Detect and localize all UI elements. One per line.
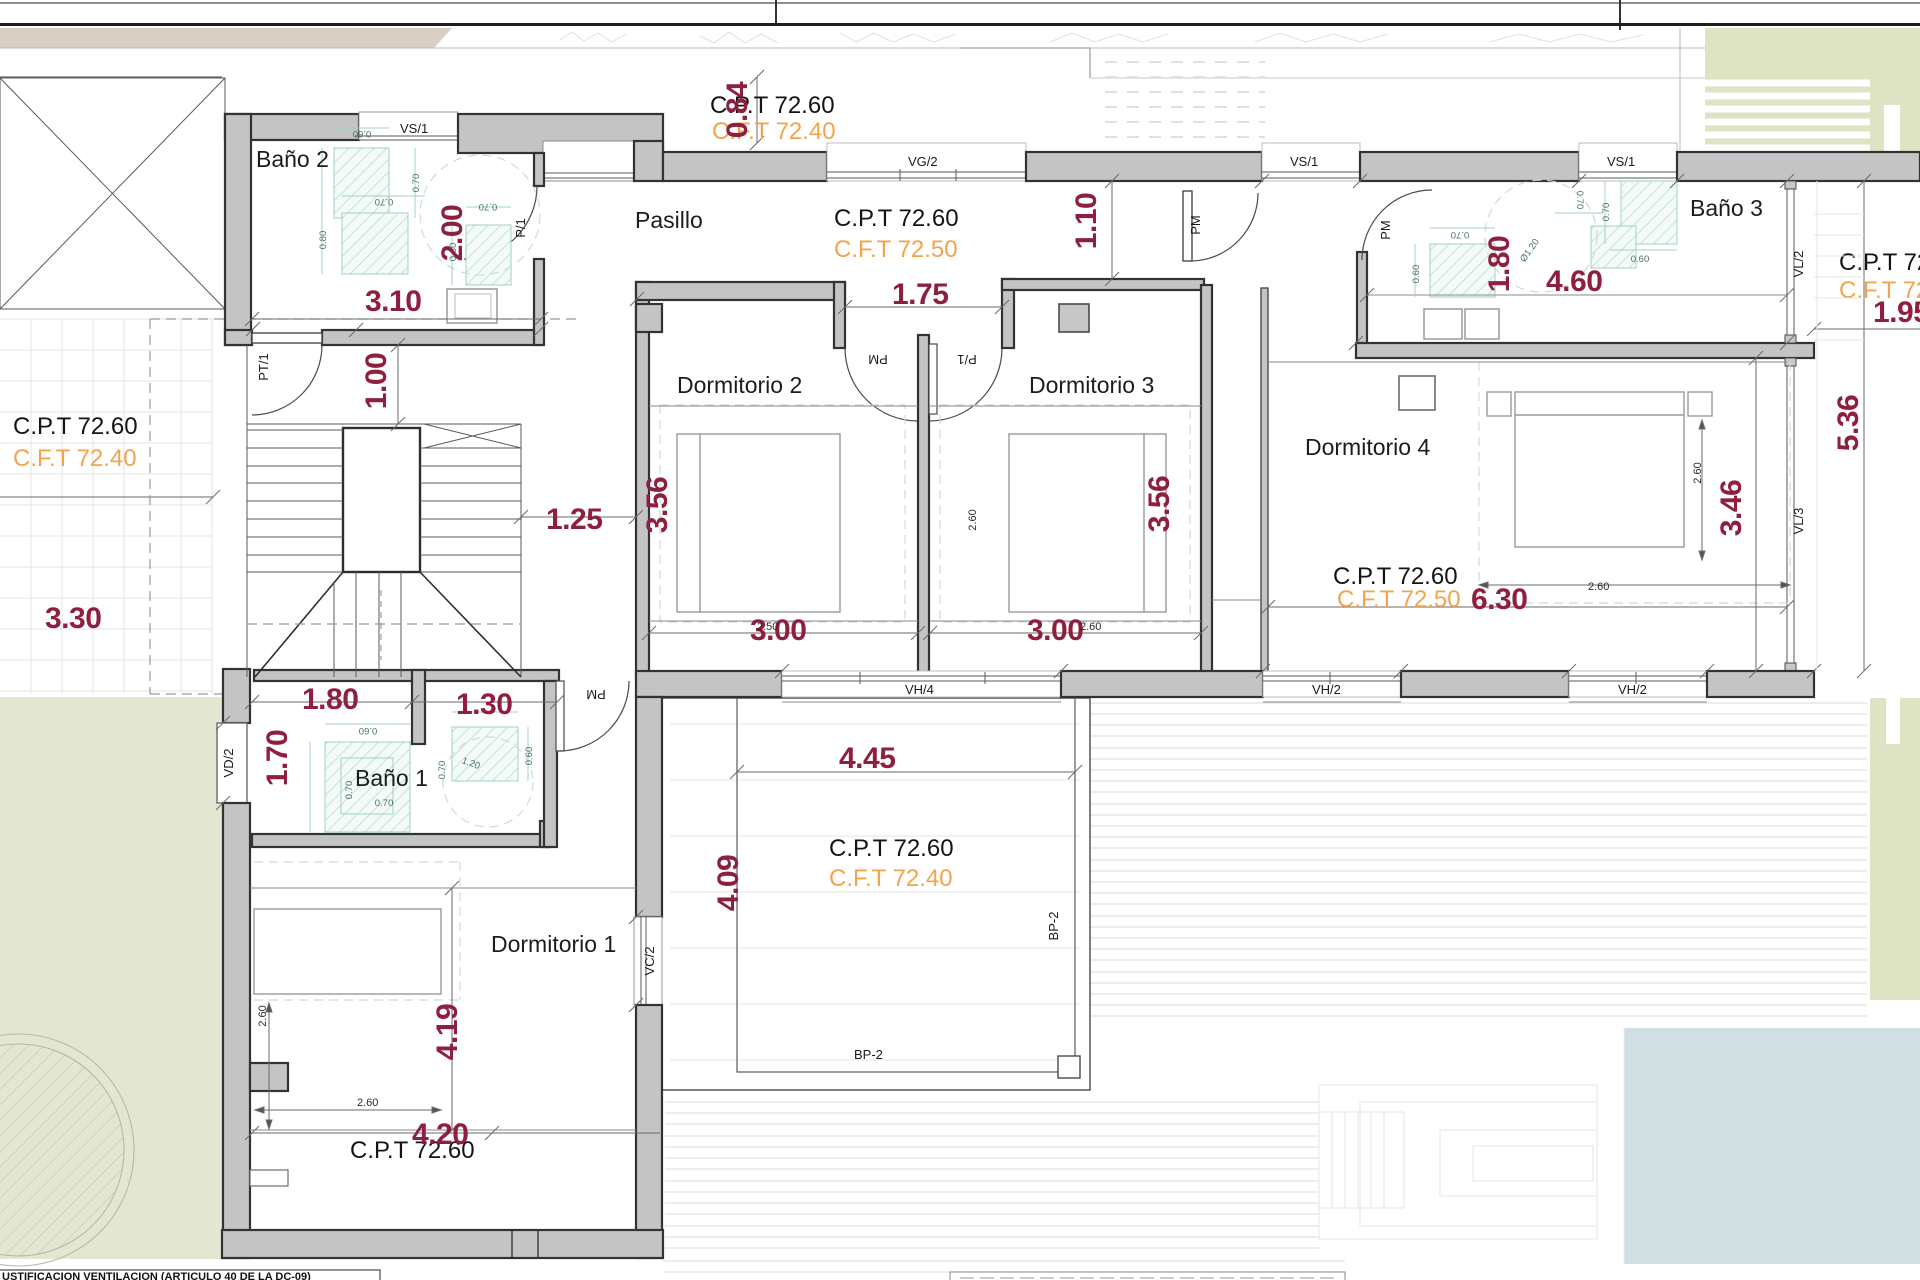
svg-text:3.10: 3.10 bbox=[365, 285, 421, 318]
svg-text:VH/2: VH/2 bbox=[1312, 682, 1341, 697]
svg-text:2.00: 2.00 bbox=[436, 205, 469, 261]
svg-text:C.P.T 72.60: C.P.T 72.60 bbox=[1839, 249, 1920, 276]
svg-text:2.60: 2.60 bbox=[257, 1005, 269, 1026]
svg-text:1.75: 1.75 bbox=[892, 278, 948, 311]
svg-text:0.60: 0.60 bbox=[353, 128, 372, 139]
svg-text:1.70: 1.70 bbox=[261, 730, 294, 786]
svg-text:Dormitorio 1: Dormitorio 1 bbox=[491, 931, 616, 957]
svg-text:0.70: 0.70 bbox=[411, 174, 422, 193]
svg-text:4.09: 4.09 bbox=[712, 855, 745, 911]
svg-text:0.60: 0.60 bbox=[524, 747, 535, 766]
svg-text:1.00: 1.00 bbox=[360, 353, 393, 409]
svg-text:0.70: 0.70 bbox=[375, 196, 394, 207]
svg-text:0.70: 0.70 bbox=[479, 201, 498, 212]
svg-text:1.25: 1.25 bbox=[546, 503, 602, 536]
svg-text:2.60: 2.60 bbox=[1692, 462, 1704, 483]
svg-text:0.80: 0.80 bbox=[318, 231, 329, 250]
svg-text:4.19: 4.19 bbox=[431, 1004, 464, 1060]
svg-text:2.60: 2.60 bbox=[1588, 581, 1609, 593]
svg-text:0.70: 0.70 bbox=[1574, 191, 1585, 210]
svg-text:PM: PM bbox=[1378, 220, 1393, 240]
svg-text:Pasillo: Pasillo bbox=[635, 207, 703, 233]
svg-text:C.P.T 72.60: C.P.T 72.60 bbox=[13, 413, 138, 440]
svg-text:PM: PM bbox=[586, 687, 606, 702]
svg-text:4.20: 4.20 bbox=[412, 1118, 468, 1151]
svg-text:2.60: 2.60 bbox=[1080, 621, 1101, 633]
svg-text:C.F.T 72.50: C.F.T 72.50 bbox=[834, 236, 958, 263]
svg-text:3.56: 3.56 bbox=[641, 477, 674, 533]
svg-text:VH/2: VH/2 bbox=[1618, 682, 1647, 697]
svg-text:3.46: 3.46 bbox=[1715, 480, 1748, 536]
svg-text:4.45: 4.45 bbox=[839, 742, 895, 775]
svg-text:5.36: 5.36 bbox=[1832, 395, 1865, 451]
svg-text:0.84: 0.84 bbox=[721, 81, 754, 138]
svg-text:3.56: 3.56 bbox=[1143, 476, 1176, 532]
svg-text:VS/1: VS/1 bbox=[400, 121, 428, 136]
svg-text:VL/3: VL/3 bbox=[1791, 508, 1806, 535]
svg-text:PM: PM bbox=[868, 352, 888, 367]
svg-text:0.70: 0.70 bbox=[344, 781, 355, 800]
svg-text:1.30: 1.30 bbox=[456, 688, 512, 721]
svg-text:0.60: 0.60 bbox=[359, 725, 378, 736]
svg-text:Dormitorio 4: Dormitorio 4 bbox=[1305, 434, 1430, 460]
svg-text:VL/2: VL/2 bbox=[1791, 251, 1806, 278]
svg-text:1.80: 1.80 bbox=[1483, 236, 1516, 292]
svg-text:6.30: 6.30 bbox=[1471, 583, 1527, 616]
svg-text:0.70: 0.70 bbox=[437, 761, 448, 780]
svg-text:3.30: 3.30 bbox=[45, 602, 101, 635]
svg-text:C.P.T 72.60: C.P.T 72.60 bbox=[829, 835, 954, 862]
svg-text:2.60: 2.60 bbox=[357, 1097, 378, 1109]
svg-text:VS/1: VS/1 bbox=[1290, 154, 1318, 169]
svg-text:2.50: 2.50 bbox=[757, 621, 778, 633]
svg-text:3.00: 3.00 bbox=[1027, 614, 1083, 647]
svg-text:C.F.T 72.50: C.F.T 72.50 bbox=[1337, 586, 1461, 613]
svg-text:2.60: 2.60 bbox=[967, 509, 979, 530]
svg-text:C.F.T 72.40: C.F.T 72.40 bbox=[13, 445, 137, 472]
svg-text:1.10: 1.10 bbox=[1070, 193, 1103, 249]
svg-text:BP-2: BP-2 bbox=[1046, 912, 1061, 941]
svg-text:0.70: 0.70 bbox=[1601, 203, 1612, 222]
svg-text:0.70: 0.70 bbox=[1451, 229, 1470, 240]
svg-text:PM: PM bbox=[1188, 215, 1203, 235]
svg-text:Dormitorio 2: Dormitorio 2 bbox=[677, 372, 802, 398]
svg-text:VH/4: VH/4 bbox=[905, 682, 934, 697]
svg-text:Baño 1: Baño 1 bbox=[355, 765, 428, 791]
svg-text:VC/2: VC/2 bbox=[642, 947, 657, 976]
svg-text:VG/2: VG/2 bbox=[908, 154, 938, 169]
svg-text:VS/1: VS/1 bbox=[1607, 154, 1635, 169]
svg-text:BP-2: BP-2 bbox=[854, 1047, 883, 1062]
svg-text:0.70: 0.70 bbox=[375, 798, 394, 809]
svg-text:C.F.T 72.40: C.F.T 72.40 bbox=[829, 865, 953, 892]
svg-text:4.60: 4.60 bbox=[1546, 265, 1602, 298]
svg-text:VD/2: VD/2 bbox=[221, 749, 236, 778]
svg-text:USTIFICACION VENTILACION (ARTI: USTIFICACION VENTILACION (ARTICULO 40 DE… bbox=[2, 1271, 311, 1280]
svg-text:Baño 2: Baño 2 bbox=[256, 146, 329, 172]
svg-text:1.80: 1.80 bbox=[302, 683, 358, 716]
svg-text:PT/1: PT/1 bbox=[256, 353, 271, 380]
svg-text:Dormitorio 3: Dormitorio 3 bbox=[1029, 372, 1154, 398]
svg-text:P/1: P/1 bbox=[513, 218, 528, 238]
svg-text:0.60: 0.60 bbox=[1631, 254, 1650, 265]
svg-text:0.60: 0.60 bbox=[1411, 265, 1422, 284]
svg-text:P/1: P/1 bbox=[957, 352, 977, 367]
svg-text:C.P.T 72.60: C.P.T 72.60 bbox=[834, 205, 959, 232]
svg-text:1.95: 1.95 bbox=[1873, 296, 1920, 329]
svg-text:Baño 3: Baño 3 bbox=[1690, 195, 1763, 221]
